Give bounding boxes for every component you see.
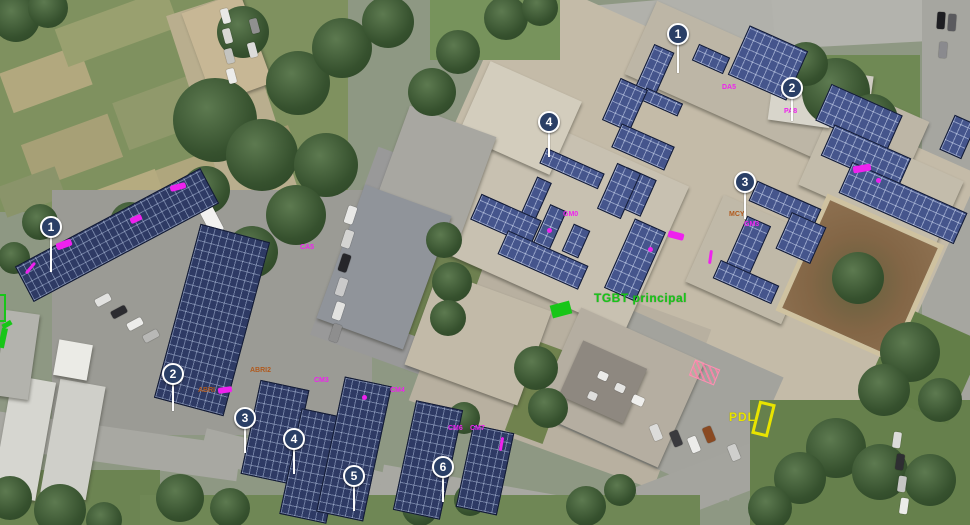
marker-number: 4 [538, 111, 560, 133]
tree [436, 30, 480, 74]
marker-stem [172, 383, 174, 411]
marker-number: 6 [432, 456, 454, 478]
tree [566, 486, 606, 525]
annotation-dot [876, 178, 881, 183]
annotation-text: CA5 [300, 244, 314, 251]
marker-number: 5 [343, 465, 365, 487]
tree [430, 300, 466, 336]
marker-number: 3 [734, 171, 756, 193]
annotation-text: CM7 [470, 425, 485, 432]
vehicle [938, 42, 947, 59]
marker-stem [293, 448, 295, 474]
tree [858, 364, 910, 416]
marker-stem [548, 131, 550, 157]
tree [210, 488, 250, 525]
tgbt-label: TGBT principal [594, 291, 687, 305]
pdl-label: PDL [729, 410, 756, 424]
aerial-pv-plan: TGBT principal PDL 1234561234DA5PA8GM0GM… [0, 0, 970, 525]
vehicle [936, 12, 945, 30]
annotation-text: GM0 [563, 211, 578, 218]
marker-number: 1 [667, 23, 689, 45]
annotation-text: MCY [729, 211, 745, 218]
tree [266, 185, 326, 245]
marker-stem [744, 191, 746, 219]
marker-number: 4 [283, 428, 305, 450]
annotation-text: CM3 [314, 377, 329, 384]
tree [748, 486, 792, 525]
tree [226, 119, 298, 191]
marker-stem [353, 485, 355, 511]
tree [528, 388, 568, 428]
vehicle [947, 14, 956, 32]
tree [604, 474, 636, 506]
tree [362, 0, 414, 48]
annotation-text: CM6 [448, 425, 463, 432]
tree [918, 378, 962, 422]
tree [432, 262, 472, 302]
tree [156, 474, 204, 522]
tree [408, 68, 456, 116]
tree [426, 222, 462, 258]
annotation-dot [648, 247, 653, 252]
tree [832, 252, 884, 304]
tree [514, 346, 558, 390]
annotation-text: CM4 [390, 387, 405, 394]
marker-stem [244, 427, 246, 453]
annotation-text: ABRI2 [250, 367, 271, 374]
marker-number: 2 [162, 363, 184, 385]
marker-stem [677, 43, 679, 73]
marker-stem [50, 236, 52, 272]
annotation-dot [362, 395, 367, 400]
tree [904, 454, 956, 506]
marker-number: 3 [234, 407, 256, 429]
marker-stem [442, 476, 444, 502]
marker-stem [791, 97, 793, 121]
marker-number: 2 [781, 77, 803, 99]
annotation-text: GM3 [744, 221, 759, 228]
marker-number: 1 [40, 216, 62, 238]
building-white-small [53, 339, 93, 380]
annotation-dot [547, 228, 552, 233]
annotation-text: ABRI [198, 387, 215, 394]
green-outline-box [0, 294, 6, 322]
annotation-text: DA5 [722, 84, 736, 91]
